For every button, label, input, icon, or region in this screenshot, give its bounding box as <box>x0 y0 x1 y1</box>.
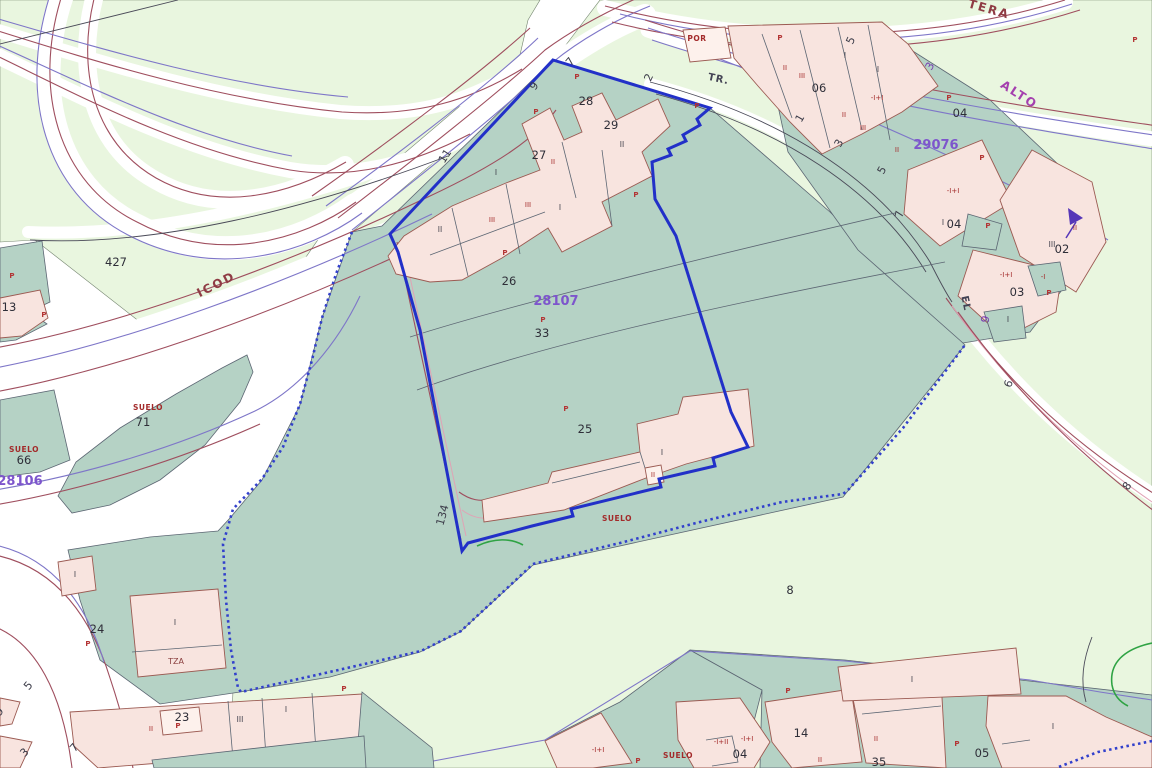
floors-marker-label: III <box>1049 240 1056 249</box>
floors-marker-label: II <box>818 756 822 764</box>
zone-label: SUELO <box>602 514 632 523</box>
zone-label: TZA <box>167 657 184 666</box>
floors-marker-label: II <box>149 725 153 733</box>
patio-marker-label: P <box>785 687 790 695</box>
floors-marker-label: -I+I <box>947 187 960 195</box>
floors-marker-label: I <box>285 705 287 714</box>
parcel-number-label: 04 <box>953 106 968 120</box>
floors-marker-label: III <box>860 124 866 132</box>
patio-marker-label: P <box>540 316 545 324</box>
parcel-number-label: 14 <box>794 726 809 740</box>
patio-marker-label: P <box>1046 289 1051 297</box>
patio-marker-label: P <box>1132 36 1137 44</box>
patio-marker-label: P <box>574 73 579 81</box>
floors-marker-label: -I+II <box>714 738 729 746</box>
floors-marker-label: III <box>525 201 531 209</box>
floors-marker-label: I <box>495 168 497 177</box>
zone-label: SUELO <box>663 751 693 760</box>
patio-marker-label: P <box>341 685 346 693</box>
zone-label: SUELO <box>9 445 39 454</box>
floors-marker-label: II <box>874 735 878 743</box>
floors-marker-label: I <box>911 675 913 684</box>
parcel-number-label: 03 <box>1010 285 1025 299</box>
floors-marker-label: II <box>1073 224 1077 232</box>
floors-marker-label: I <box>661 448 663 457</box>
parcel-number-label: 05 <box>975 746 990 760</box>
parcel-id-label: 28107 <box>533 294 578 309</box>
floors-marker-label: -I+I <box>871 94 884 102</box>
patio-marker-label: P <box>694 102 699 110</box>
floors-marker-label: I <box>174 618 176 627</box>
patio-marker-label: P <box>979 154 984 162</box>
patio-marker-label: P <box>635 757 640 765</box>
floors-marker-label: I <box>559 203 561 212</box>
parcel-number-label: 25 <box>578 422 593 436</box>
cadastral-map[interactable]: ICODTERAALTOTR.EL28107281062907642713716… <box>0 0 1152 768</box>
cadastral-map-viewport[interactable]: ICODTERAALTOTR.EL28107281062907642713716… <box>0 0 1152 768</box>
parcel-number-label: 06 <box>812 81 827 95</box>
floors-marker-label: -I+I <box>741 735 754 743</box>
parcel-number-label: 13 <box>2 300 17 314</box>
floors-marker-label: -I <box>1041 273 1046 281</box>
patio-marker-label: P <box>533 108 538 116</box>
floors-marker-label: I <box>1052 722 1054 731</box>
parcel-number-label: 33 <box>535 326 550 340</box>
patio-marker-label: P <box>985 222 990 230</box>
floors-marker-label: III <box>237 715 244 724</box>
address-number-label: 5 <box>21 679 35 693</box>
floors-marker-label: II <box>438 225 442 234</box>
floors-marker-label: II <box>783 64 787 72</box>
parcel-number-label: 24 <box>90 622 105 636</box>
floors-marker-label: II <box>620 140 624 149</box>
floors-marker-label: II <box>895 146 899 154</box>
floors-marker-label: III <box>799 72 805 80</box>
parcel-number-label: 04 <box>733 747 748 761</box>
floors-marker-label: -I+I <box>592 746 605 754</box>
parcel-number-label: 8 <box>786 583 793 597</box>
patio-marker-label: P <box>9 272 14 280</box>
floors-marker-label: -I+I <box>1000 271 1013 279</box>
floors-marker-label: I <box>844 51 846 60</box>
parcel-number-label: 02 <box>1055 242 1070 256</box>
parcel-number-label: 35 <box>872 755 887 768</box>
floors-marker-label: II <box>651 471 655 479</box>
zone-label: SUELO <box>133 403 163 412</box>
parcel-number-label: 04 <box>947 217 962 231</box>
patio-marker-label: P <box>502 249 507 257</box>
parcel-id-label: 28106 <box>0 474 43 489</box>
floors-marker-label: I <box>74 570 76 579</box>
floors-marker-label: I <box>942 218 944 227</box>
floors-marker-label: III <box>489 216 495 224</box>
patio-marker-label: P <box>777 34 782 42</box>
parcel-number-label: 71 <box>136 415 151 429</box>
parcel-number-label: 427 <box>105 255 127 269</box>
patio-marker-label: P <box>633 191 638 199</box>
parcel-id-label: 29076 <box>913 138 958 153</box>
parcel-number-label: 66 <box>17 453 32 467</box>
patio-marker-label: P <box>175 722 180 730</box>
parcel-number-label: 26 <box>502 274 517 288</box>
patio-marker-label: P <box>946 94 951 102</box>
patio-marker-label: P <box>41 311 46 319</box>
parcel-number-label: 29 <box>604 118 619 132</box>
patio-marker-label: P <box>954 740 959 748</box>
parcel-number-label: 27 <box>532 148 547 162</box>
floors-marker-label: II <box>842 111 846 119</box>
floors-marker-label: I <box>1007 315 1009 324</box>
patio-marker-label: P <box>85 640 90 648</box>
parcel-number-label: 28 <box>579 94 594 108</box>
floors-marker-label: I <box>877 65 879 74</box>
floors-marker-label: II <box>551 158 555 166</box>
patio-marker-label: P <box>563 405 568 413</box>
zone-label: POR <box>687 34 706 43</box>
